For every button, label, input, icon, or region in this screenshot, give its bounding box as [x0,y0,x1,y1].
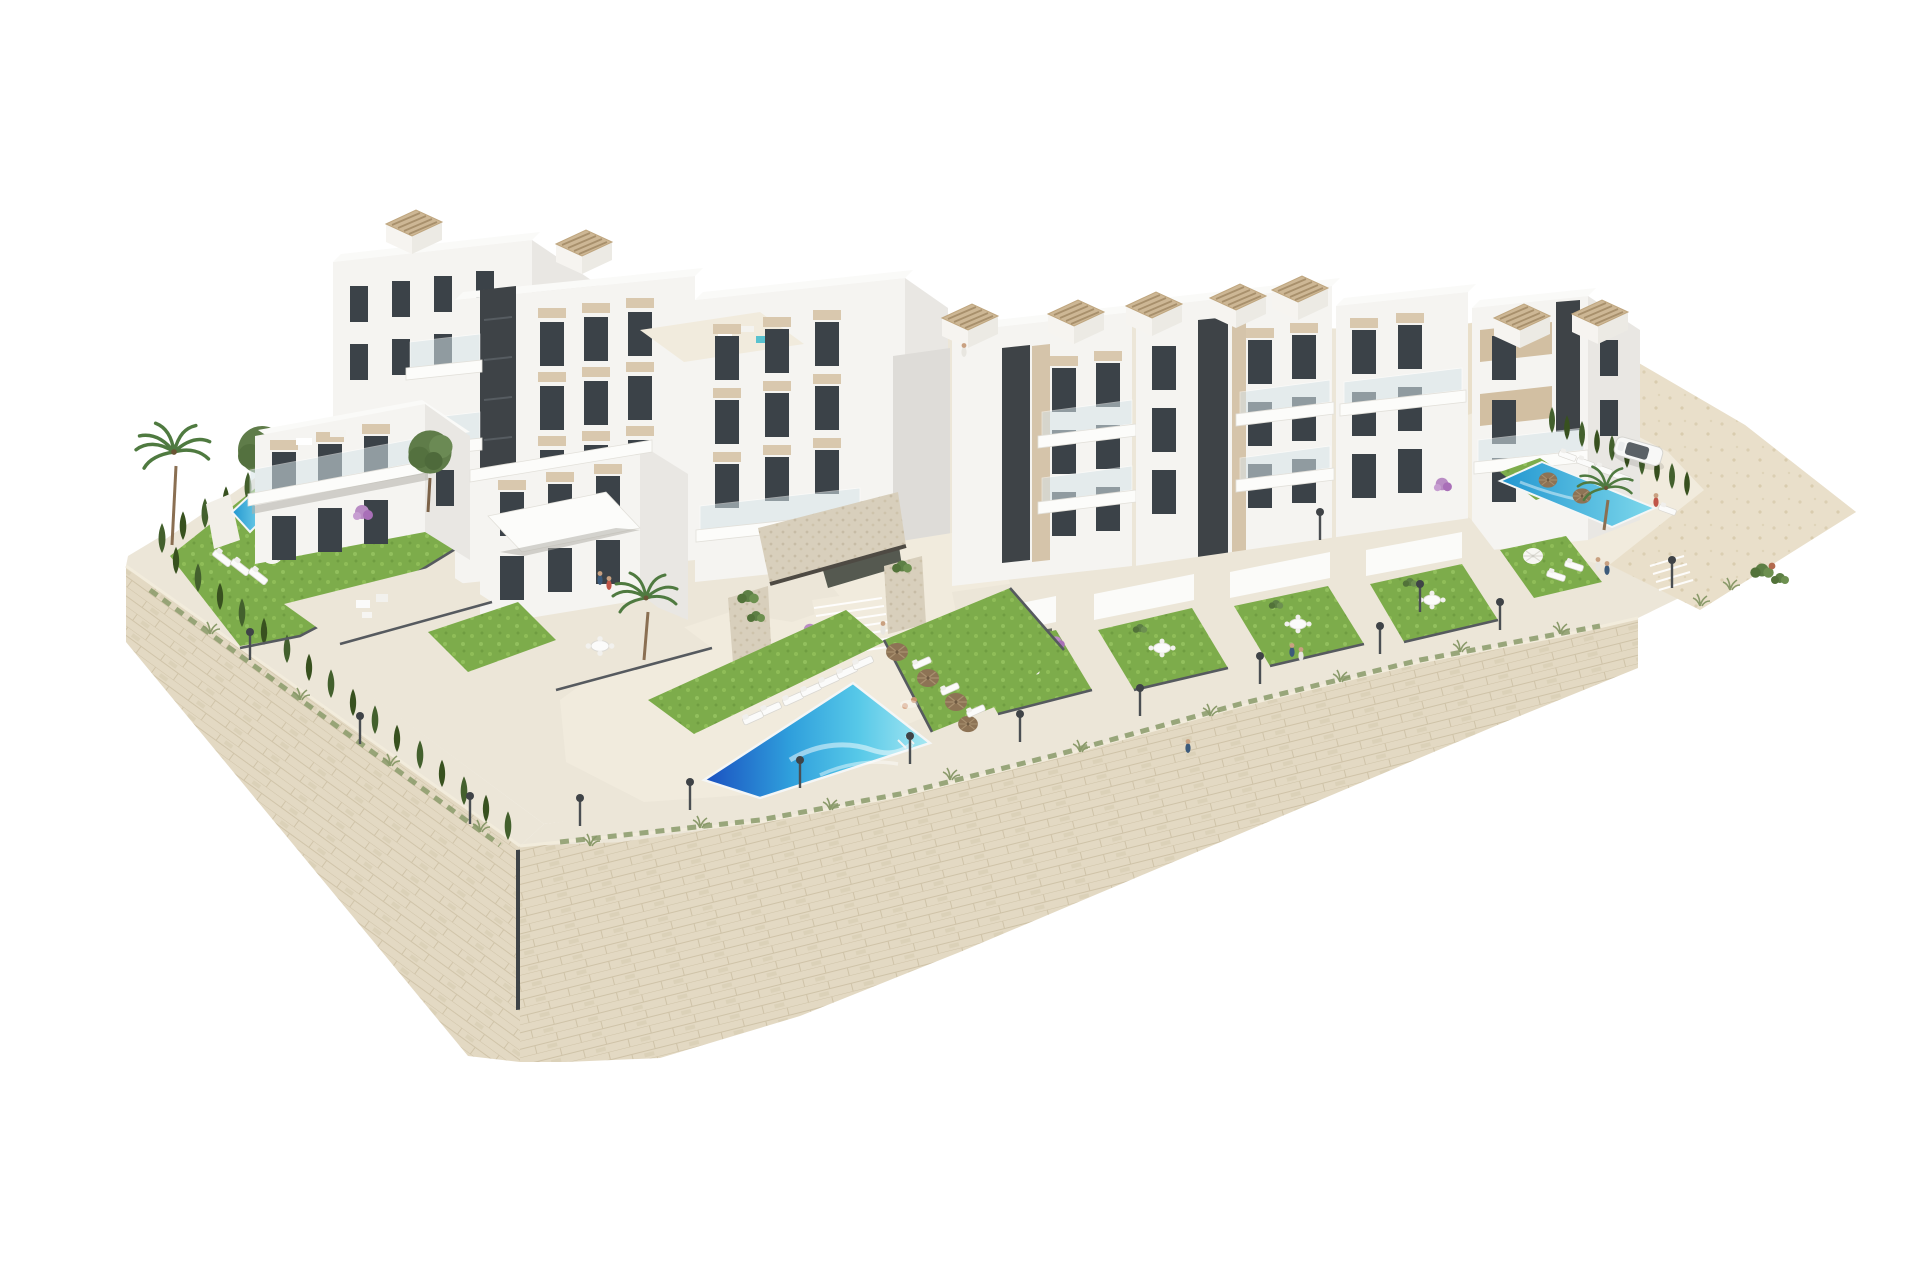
render-scene [0,0,1920,1280]
architectural-render-canvas [0,0,1920,1280]
white-umbrella [1523,548,1543,564]
person-on-roof [961,343,966,357]
stair-core [1198,317,1228,561]
pedestrian [880,621,885,635]
stair-core [1002,345,1030,563]
pedestrian [1653,493,1658,507]
